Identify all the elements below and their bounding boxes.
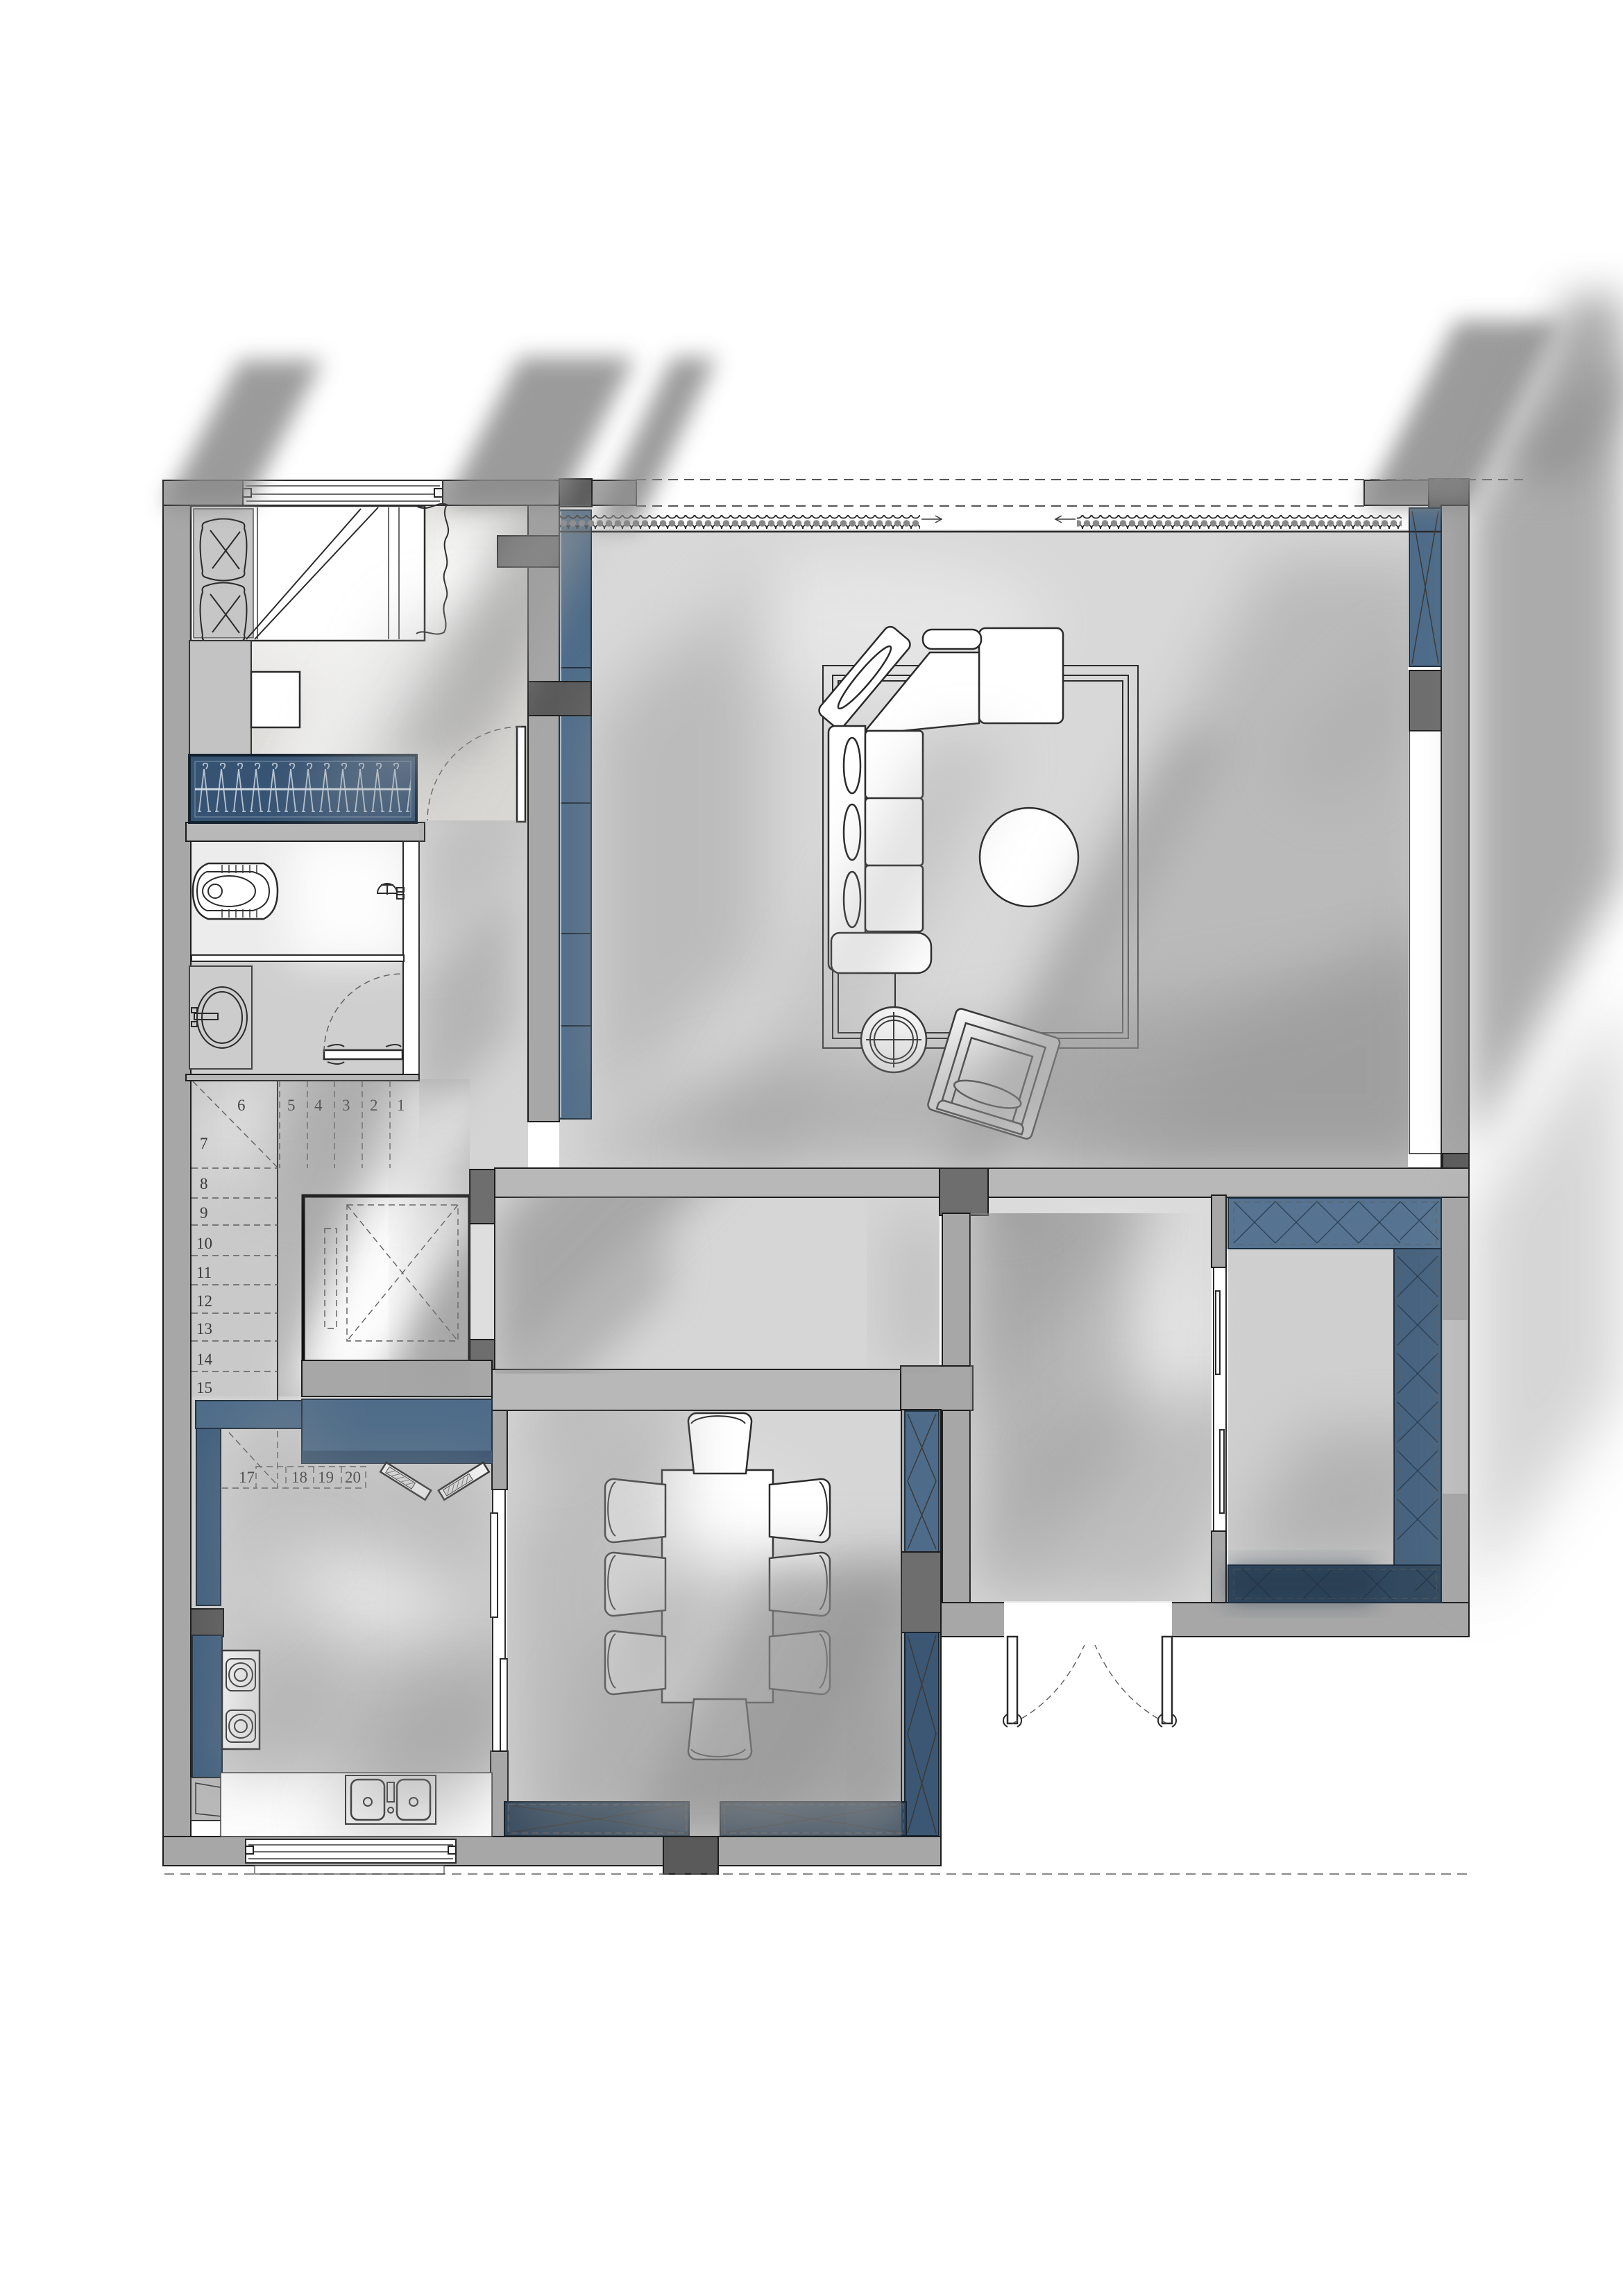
- svg-text:8: 8: [200, 1175, 208, 1192]
- svg-text:6: 6: [237, 1097, 246, 1114]
- svg-text:12: 12: [196, 1292, 212, 1310]
- svg-text:9: 9: [200, 1204, 208, 1222]
- svg-text:7: 7: [200, 1135, 208, 1152]
- svg-text:10: 10: [196, 1235, 212, 1252]
- svg-text:15: 15: [196, 1379, 212, 1396]
- svg-text:14: 14: [196, 1351, 213, 1368]
- svg-text:13: 13: [196, 1320, 212, 1337]
- svg-text:11: 11: [196, 1264, 212, 1281]
